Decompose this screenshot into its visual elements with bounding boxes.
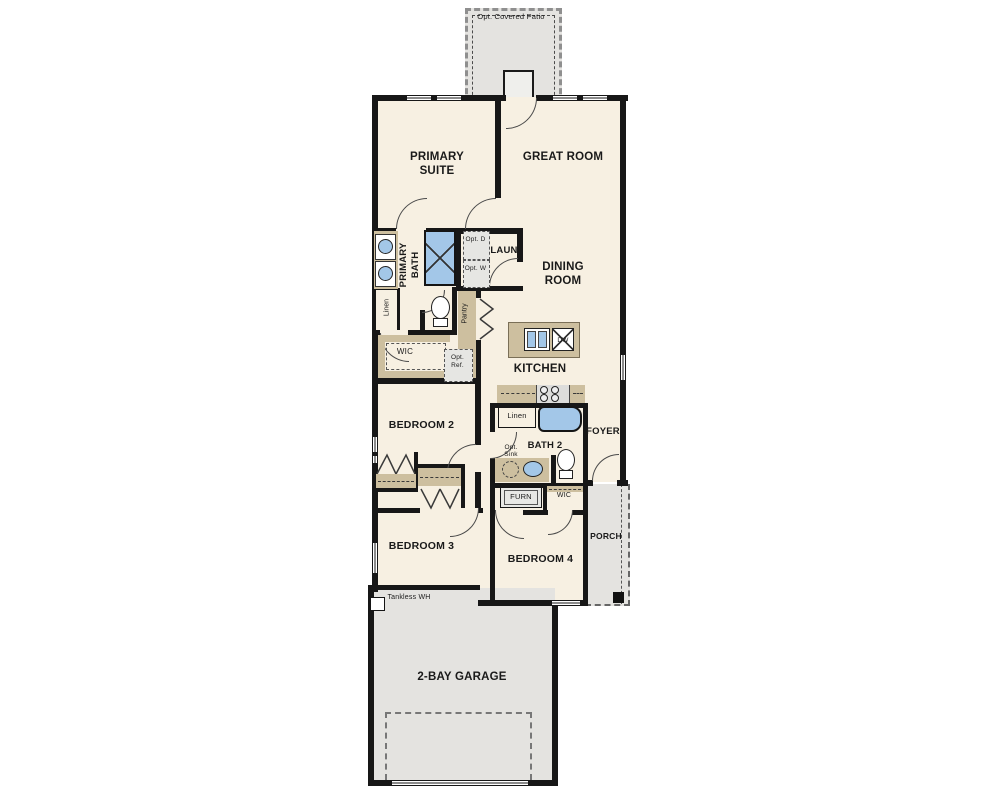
garage-label: 2-BAY GARAGE: [417, 670, 507, 684]
wic-primary-label: WIC: [390, 347, 420, 357]
laundry-label: LAUN: [487, 245, 521, 257]
opt-sink-label: Opt. Sink: [499, 444, 523, 459]
wall-bedroom4-top: [523, 510, 548, 515]
window-dining: [620, 355, 626, 380]
counter-dashed-line: [501, 393, 535, 394]
wall-furn-left: [490, 483, 495, 510]
wall-right: [620, 95, 626, 355]
wall-bedroom2-right: [475, 472, 481, 508]
patio-stoop: [503, 70, 534, 97]
bedroom4-label: BEDROOM 4: [493, 553, 588, 566]
garage-door-dashed-box: [385, 712, 532, 780]
wall-bedroom4-bottom: [478, 600, 552, 606]
primary-sink-2-bowl-icon: [378, 266, 393, 281]
kitchen-label: KITCHEN: [504, 362, 576, 376]
wall-bedroom3-bottom: [368, 585, 480, 590]
tankless-wh-box: [370, 597, 385, 611]
range-burner-icon: [551, 386, 559, 394]
pantry-label: Pantry: [462, 286, 469, 342]
toilet2-bowl-icon: [557, 449, 575, 471]
floor-plan: Opt. Covered Patio: [0, 0, 1000, 800]
great-room-label: GREAT ROOM: [518, 150, 608, 164]
island-sink-basin-left: [527, 331, 536, 348]
bedroom2-label: BEDROOM 2: [374, 419, 469, 432]
opt-dryer-label: Opt. D: [463, 236, 488, 244]
dining-room-label: DINING ROOM: [523, 260, 603, 289]
range-burner-icon: [540, 394, 548, 402]
foyer-label: FOYER: [583, 426, 623, 438]
primary-sink-1-bowl-icon: [378, 239, 393, 254]
wall-laundry-left: [456, 228, 461, 288]
linen-bath2-label: Linen: [498, 411, 536, 420]
wic-shelf-bottom: [378, 371, 450, 378]
wall-alcove-right: [452, 287, 457, 332]
tankless-wh-label: Tankless WH: [386, 594, 432, 603]
opt-washer-label: Opt. W: [463, 265, 488, 273]
window-bedroom4: [552, 600, 580, 606]
wall-pantry-right: [476, 340, 481, 380]
window-primary-suite-1: [407, 95, 431, 101]
closet-shelf-dashed-line: [378, 481, 414, 482]
window-primary-suite-2: [437, 95, 461, 101]
wall-alcove-left: [420, 310, 425, 332]
wall-bedroom2-right: [475, 384, 481, 445]
shower-icon: [424, 230, 456, 286]
primary-suite-label: PRIMARY SUITE: [392, 150, 482, 179]
patio-label: Opt. Covered Patio: [467, 12, 555, 21]
porch-inner-dashed-line: [621, 484, 622, 604]
pantry-doors-icon: [479, 298, 495, 340]
wall-bedroom4-right: [583, 486, 588, 600]
bath2-sink-icon: [523, 461, 543, 477]
wall-bedroom3-top: [372, 508, 420, 513]
counter-dashed-line: [573, 393, 583, 394]
range-burner-icon: [540, 386, 548, 394]
window-great-room-2: [583, 95, 607, 101]
toilet2-tank-icon: [559, 470, 573, 479]
wic4-shelf-dashed-line: [549, 489, 581, 490]
furnace-label: FURN: [500, 492, 542, 501]
wic-bedroom4-label: WIC: [548, 492, 580, 501]
range-burner-icon: [551, 394, 559, 402]
porch-area: [585, 484, 630, 606]
wall-garage-right: [552, 600, 558, 786]
wall-top: [536, 95, 553, 101]
wall-suite-greatroom: [495, 95, 501, 198]
garage-door-opening: [392, 780, 528, 786]
wic-shelf-top: [378, 335, 450, 342]
opt-sink-dashed-icon: [502, 461, 519, 478]
bedroom3-label: BEDROOM 3: [374, 540, 469, 553]
wall-foyer-left: [583, 403, 588, 486]
wall-garage-left: [368, 588, 374, 786]
bedroom2-closet-doors-icon: [376, 453, 416, 475]
wall-bedroom4-bottom: [580, 600, 588, 606]
linen-primary-label: Linen: [384, 290, 391, 326]
porch-label: PORCH: [584, 531, 628, 542]
bath2-label: BATH 2: [520, 440, 570, 452]
bedroom3-closet-doors-icon: [420, 488, 460, 510]
wall-vanity2-toilet: [551, 455, 556, 483]
window-great-room-1: [553, 95, 577, 101]
closet-shelf-dashed-line: [420, 477, 459, 478]
dishwasher-label: DW: [552, 337, 574, 345]
opt-ref-label: Opt. Ref.: [447, 354, 468, 370]
toilet1-bowl-icon: [431, 296, 450, 319]
wall-closet2-bottom: [372, 488, 418, 492]
island-sink-basin-right: [538, 331, 547, 348]
primary-bath-label: PRIMARY BATH: [398, 233, 422, 297]
toilet1-tank-icon: [433, 318, 448, 327]
porch-post: [613, 592, 624, 603]
bathtub-icon: [538, 406, 582, 432]
wall-garage-bottom: [368, 780, 392, 786]
